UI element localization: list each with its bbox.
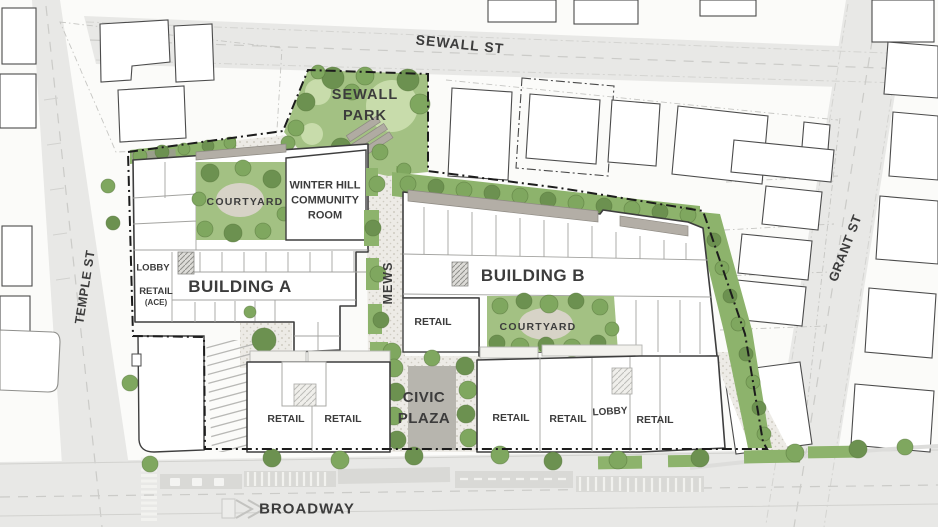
corner-building-parking — [132, 334, 258, 456]
retail-ace-line2: (ACE) — [139, 298, 173, 308]
retail-se-1-label: RETAIL — [492, 412, 529, 424]
community-room-line1: WINTER HILL — [290, 179, 361, 194]
retail-mews-label: RETAIL — [414, 316, 451, 328]
retail-sw-1-label: RETAIL — [267, 413, 304, 425]
building-a — [133, 144, 368, 352]
courtyard-b-label: COURTYARD — [500, 321, 577, 333]
retail-se-building — [477, 345, 725, 452]
retail-sw-building — [247, 351, 390, 452]
retail-ace-line1: RETAIL — [139, 286, 173, 298]
retail-se-2-label: RETAIL — [549, 413, 586, 425]
retail-ace-label: RETAIL (ACE) — [139, 286, 173, 308]
community-room-label: WINTER HILL COMMUNITY ROOM — [290, 179, 361, 224]
mews-label: MEWS — [381, 262, 395, 305]
civic-plaza-label: CIVIC PLAZA — [398, 387, 451, 429]
civic-plaza-line2: PLAZA — [398, 408, 451, 429]
lobby-a-label: LOBBY — [136, 263, 169, 274]
lobby-b-label: LOBBY — [592, 406, 628, 419]
courtyard-a-label: COURTYARD — [207, 196, 284, 208]
retail-se-3-label: RETAIL — [636, 414, 673, 426]
community-room-line2: COMMUNITY — [290, 194, 361, 209]
park-label: SEWALL PARK — [332, 85, 398, 127]
park-label-line2: PARK — [332, 106, 398, 127]
retail-sw-2-label: RETAIL — [324, 413, 361, 425]
civic-plaza-line1: CIVIC — [398, 387, 451, 408]
park-label-line1: SEWALL — [332, 85, 398, 106]
building-a-label: BUILDING A — [188, 277, 292, 297]
site-plan: SEWALL ST TEMPLE ST GRANT ST BROADWAY SE… — [0, 0, 938, 527]
community-room-line3: ROOM — [290, 208, 361, 223]
building-b-label: BUILDING B — [481, 266, 585, 286]
street-label-broadway: BROADWAY — [259, 501, 355, 518]
